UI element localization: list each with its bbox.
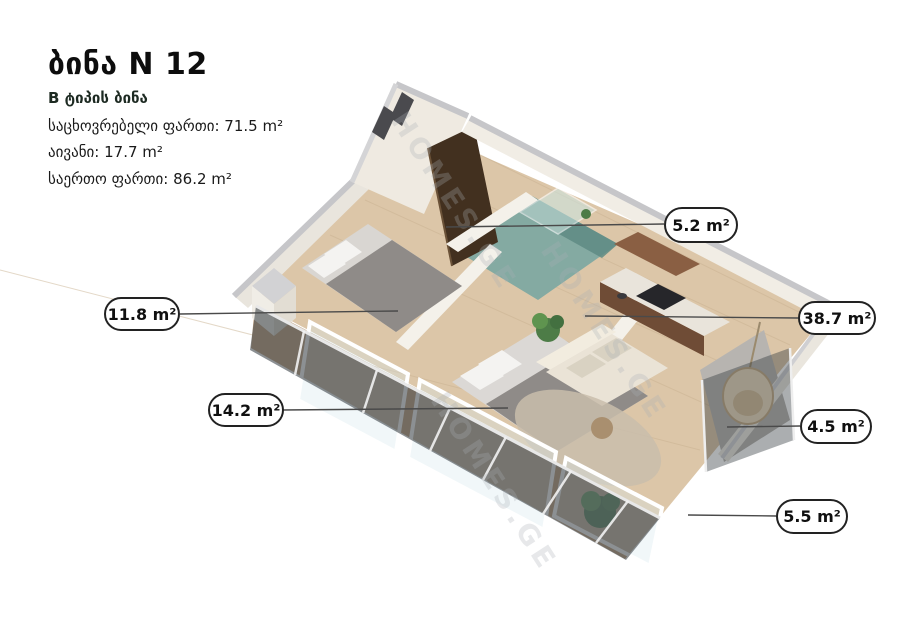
sink — [617, 293, 627, 299]
area-label-living-room: 38.7 m² — [798, 301, 876, 335]
area-label-balcony-right: 4.5 m² — [800, 409, 872, 444]
area-label-bedroom-1: 11.8 m² — [104, 297, 180, 331]
area-label-bedroom-2: 14.2 m² — [208, 393, 284, 427]
plant-small — [581, 209, 591, 219]
coffee-table — [591, 417, 613, 439]
leader-line-balcony-bottom — [688, 515, 776, 516]
area-label-balcony-bottom: 5.5 m² — [776, 499, 848, 534]
leader-line-balcony-right — [727, 426, 800, 427]
area-label-bathroom: 5.2 m² — [664, 207, 738, 243]
apartment-listing-page: ბინა N 12 B ტიპის ბინა საცხოვრებელი ფართ… — [0, 0, 900, 636]
